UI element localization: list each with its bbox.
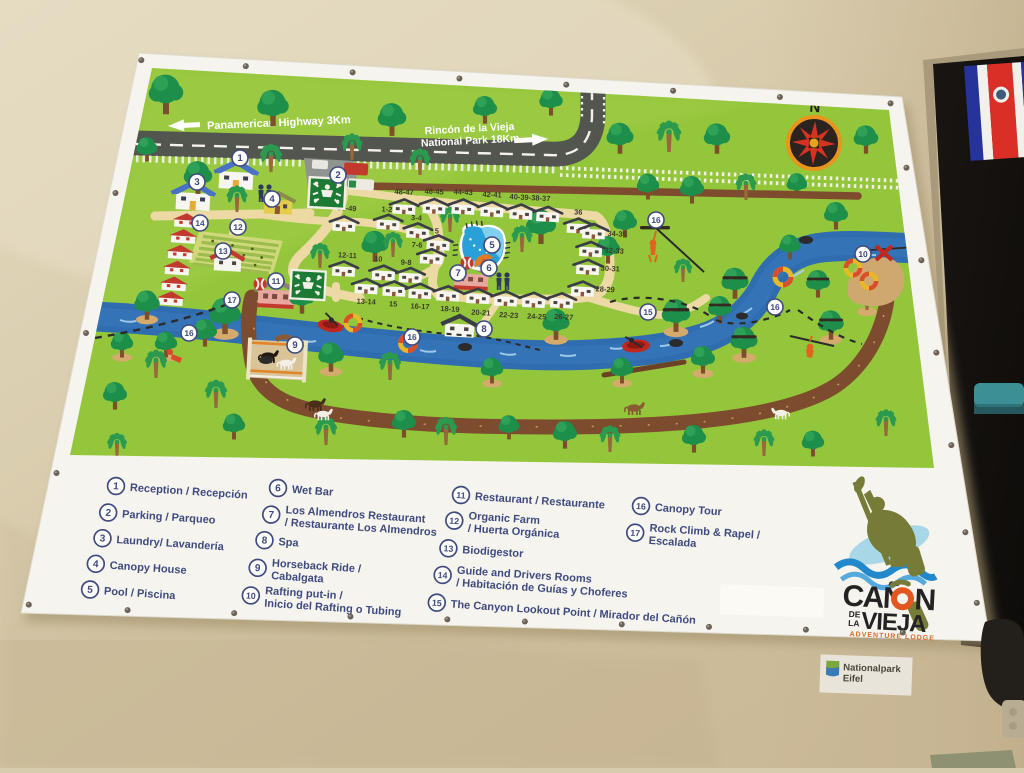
svg-text:30-31: 30-31 bbox=[600, 264, 620, 274]
svg-text:8: 8 bbox=[481, 324, 487, 335]
svg-text:9-8: 9-8 bbox=[400, 258, 411, 268]
svg-text:6: 6 bbox=[486, 263, 491, 274]
svg-text:32-33: 32-33 bbox=[604, 246, 624, 256]
svg-text:1-2: 1-2 bbox=[381, 205, 392, 215]
svg-text:48-47: 48-47 bbox=[394, 187, 414, 197]
svg-text:16: 16 bbox=[184, 328, 194, 338]
svg-text:10: 10 bbox=[858, 249, 868, 259]
svg-text:16: 16 bbox=[407, 332, 417, 342]
svg-text:5: 5 bbox=[87, 585, 94, 596]
svg-text:34-35: 34-35 bbox=[607, 229, 627, 239]
svg-text:6: 6 bbox=[275, 483, 282, 494]
svg-text:36: 36 bbox=[574, 207, 583, 216]
svg-text:3-4: 3-4 bbox=[411, 213, 423, 223]
svg-text:16: 16 bbox=[651, 215, 661, 225]
svg-text:42-41: 42-41 bbox=[482, 190, 502, 200]
svg-text:22-23: 22-23 bbox=[499, 310, 519, 320]
svg-text:11: 11 bbox=[456, 490, 466, 501]
svg-text:17: 17 bbox=[227, 295, 237, 305]
svg-text:1: 1 bbox=[237, 153, 243, 164]
svg-text:16: 16 bbox=[636, 501, 647, 512]
svg-text:LA: LA bbox=[848, 618, 860, 629]
svg-text:12-11: 12-11 bbox=[338, 250, 357, 260]
svg-text:17: 17 bbox=[630, 528, 641, 539]
svg-text:15: 15 bbox=[643, 307, 653, 317]
svg-text:24-25: 24-25 bbox=[527, 312, 547, 322]
svg-text:11: 11 bbox=[272, 276, 281, 286]
svg-text:4: 4 bbox=[269, 194, 275, 205]
svg-text:15: 15 bbox=[389, 299, 398, 308]
svg-text:16-17: 16-17 bbox=[410, 301, 430, 311]
svg-text:3: 3 bbox=[99, 533, 106, 544]
svg-text:44-43: 44-43 bbox=[453, 187, 473, 197]
svg-text:13-14: 13-14 bbox=[356, 297, 376, 307]
svg-text:46-45: 46-45 bbox=[424, 187, 444, 197]
svg-text:7: 7 bbox=[455, 268, 460, 279]
svg-text:Spa: Spa bbox=[278, 536, 300, 549]
svg-text:26-27: 26-27 bbox=[554, 312, 574, 322]
svg-text:7: 7 bbox=[268, 510, 275, 521]
svg-text:5: 5 bbox=[489, 240, 495, 251]
svg-text:18-19: 18-19 bbox=[440, 304, 460, 314]
svg-text:12: 12 bbox=[233, 222, 243, 232]
svg-text:5: 5 bbox=[434, 226, 439, 235]
svg-text:10: 10 bbox=[374, 254, 383, 263]
svg-text:16: 16 bbox=[770, 302, 780, 312]
svg-text:4: 4 bbox=[93, 559, 100, 570]
svg-text:13: 13 bbox=[218, 246, 228, 256]
svg-text:Eifel: Eifel bbox=[843, 673, 863, 685]
svg-text:10: 10 bbox=[246, 590, 257, 601]
svg-text:28-29: 28-29 bbox=[595, 284, 615, 294]
svg-text:3: 3 bbox=[194, 177, 199, 188]
svg-text:14: 14 bbox=[437, 570, 448, 581]
svg-text:1: 1 bbox=[113, 481, 120, 492]
svg-text:2: 2 bbox=[105, 508, 112, 519]
svg-text:13: 13 bbox=[443, 543, 454, 554]
svg-text:12: 12 bbox=[449, 516, 460, 527]
svg-text:2: 2 bbox=[335, 170, 340, 181]
svg-text:9: 9 bbox=[292, 340, 297, 351]
svg-text:20-21: 20-21 bbox=[471, 308, 491, 318]
svg-text:14: 14 bbox=[195, 218, 205, 228]
svg-text:15: 15 bbox=[432, 598, 443, 609]
svg-text:9: 9 bbox=[254, 563, 261, 574]
svg-text:8: 8 bbox=[261, 535, 268, 546]
svg-text:7-6: 7-6 bbox=[411, 240, 422, 250]
